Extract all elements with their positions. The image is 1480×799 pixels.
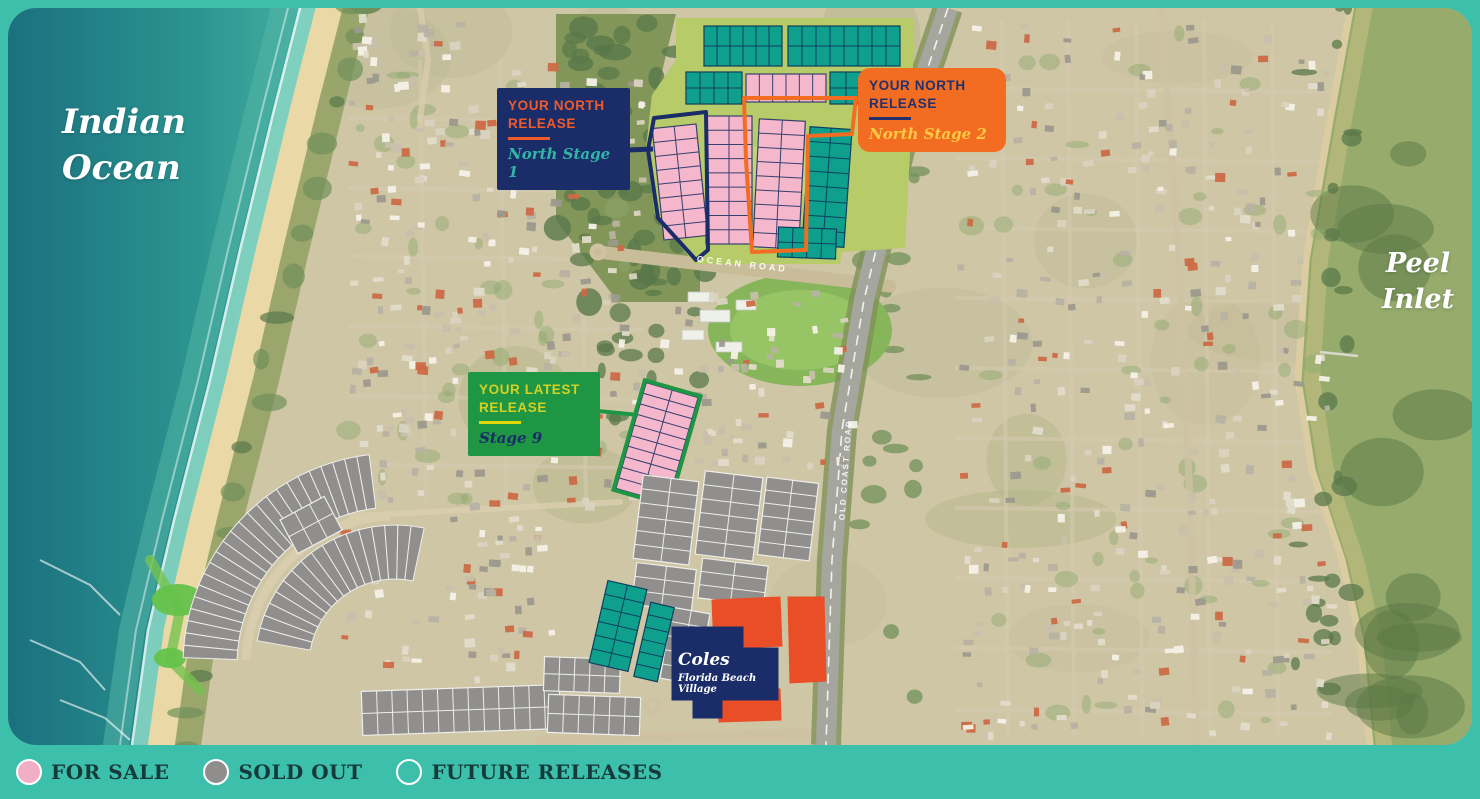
indian-ocean-label: Indian Ocean — [62, 100, 186, 192]
callout-north-stage-1: YOUR NORTH RELEASE North Stage 1 — [497, 88, 630, 190]
callout-title: YOUR NORTH RELEASE — [508, 97, 619, 132]
for-sale-swatch-icon — [16, 759, 42, 785]
legend-item-sold-out: SOLD OUT — [203, 759, 362, 785]
ocean-label-line1: Indian — [62, 100, 186, 146]
callout-underline — [869, 117, 911, 120]
callout-subtitle: North Stage 2 — [869, 125, 995, 143]
inlet-label-line1: Peel — [1368, 246, 1468, 282]
legend-item-for-sale: FOR SALE — [16, 759, 169, 785]
peel-inlet-label: Peel Inlet — [1368, 246, 1468, 319]
callout-underline — [508, 137, 550, 140]
estate-map-page: OCEAN ROADOLD COAST ROAD Indian Ocean Pe… — [0, 0, 1480, 799]
future-releases-swatch-icon — [396, 759, 422, 785]
ocean-label-line2: Ocean — [62, 146, 186, 192]
callout-north-stage-2: YOUR NORTH RELEASE North Stage 2 — [858, 68, 1006, 152]
callout-title: YOUR LATEST RELEASE — [479, 381, 589, 416]
legend-label: FUTURE RELEASES — [431, 760, 662, 784]
callout-subtitle: North Stage 1 — [508, 145, 619, 181]
callout-title: YOUR NORTH RELEASE — [869, 77, 995, 112]
store-name: Coles — [678, 650, 782, 670]
legend-item-future-releases: FUTURE RELEASES — [396, 759, 662, 785]
callout-stage-9: YOUR LATEST RELEASE Stage 9 — [468, 372, 600, 456]
callout-underline — [479, 421, 521, 424]
sold-out-swatch-icon — [203, 759, 229, 785]
callout-subtitle: Stage 9 — [479, 429, 589, 447]
store-tagline: Florida Beach Village — [678, 673, 782, 695]
legend-label: SOLD OUT — [238, 760, 362, 784]
legend-bar: FOR SALE SOLD OUT FUTURE RELEASES — [0, 745, 1480, 799]
legend-label: FOR SALE — [51, 760, 169, 784]
coles-store-label: Coles Florida Beach Village — [678, 650, 782, 695]
inlet-label-line2: Inlet — [1368, 282, 1468, 318]
